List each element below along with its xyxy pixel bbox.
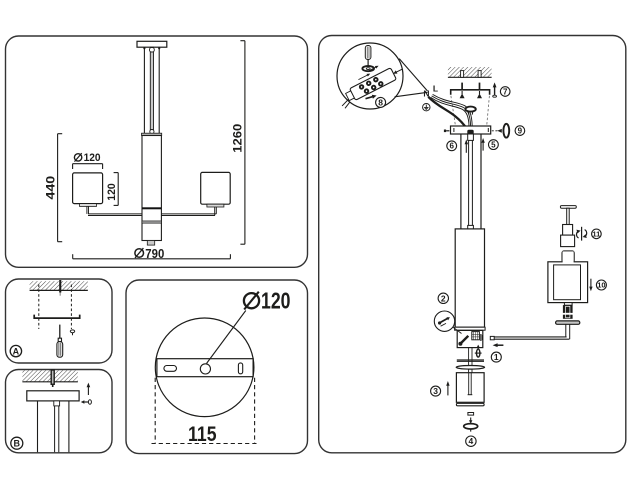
svg-text:120: 120 <box>261 288 291 314</box>
svg-text:1: 1 <box>494 352 499 362</box>
svg-text:440: 440 <box>44 175 58 199</box>
svg-text:2: 2 <box>441 293 446 303</box>
svg-text:3: 3 <box>433 386 438 396</box>
svg-text:115: 115 <box>188 423 217 446</box>
svg-text:1260: 1260 <box>231 123 245 152</box>
svg-text:790: 790 <box>145 246 164 261</box>
svg-text:L: L <box>433 83 438 93</box>
svg-text:4: 4 <box>469 436 474 446</box>
svg-text:10: 10 <box>597 281 605 290</box>
svg-text:B: B <box>14 439 21 449</box>
svg-text:11: 11 <box>592 230 600 239</box>
svg-text:9: 9 <box>518 127 523 136</box>
svg-text:120: 120 <box>106 183 118 201</box>
svg-text:A: A <box>13 346 20 356</box>
svg-text:120: 120 <box>84 152 101 164</box>
svg-text:6: 6 <box>449 142 454 151</box>
svg-text:5: 5 <box>491 141 496 150</box>
svg-text:8: 8 <box>378 97 383 107</box>
svg-text:7: 7 <box>503 87 508 96</box>
